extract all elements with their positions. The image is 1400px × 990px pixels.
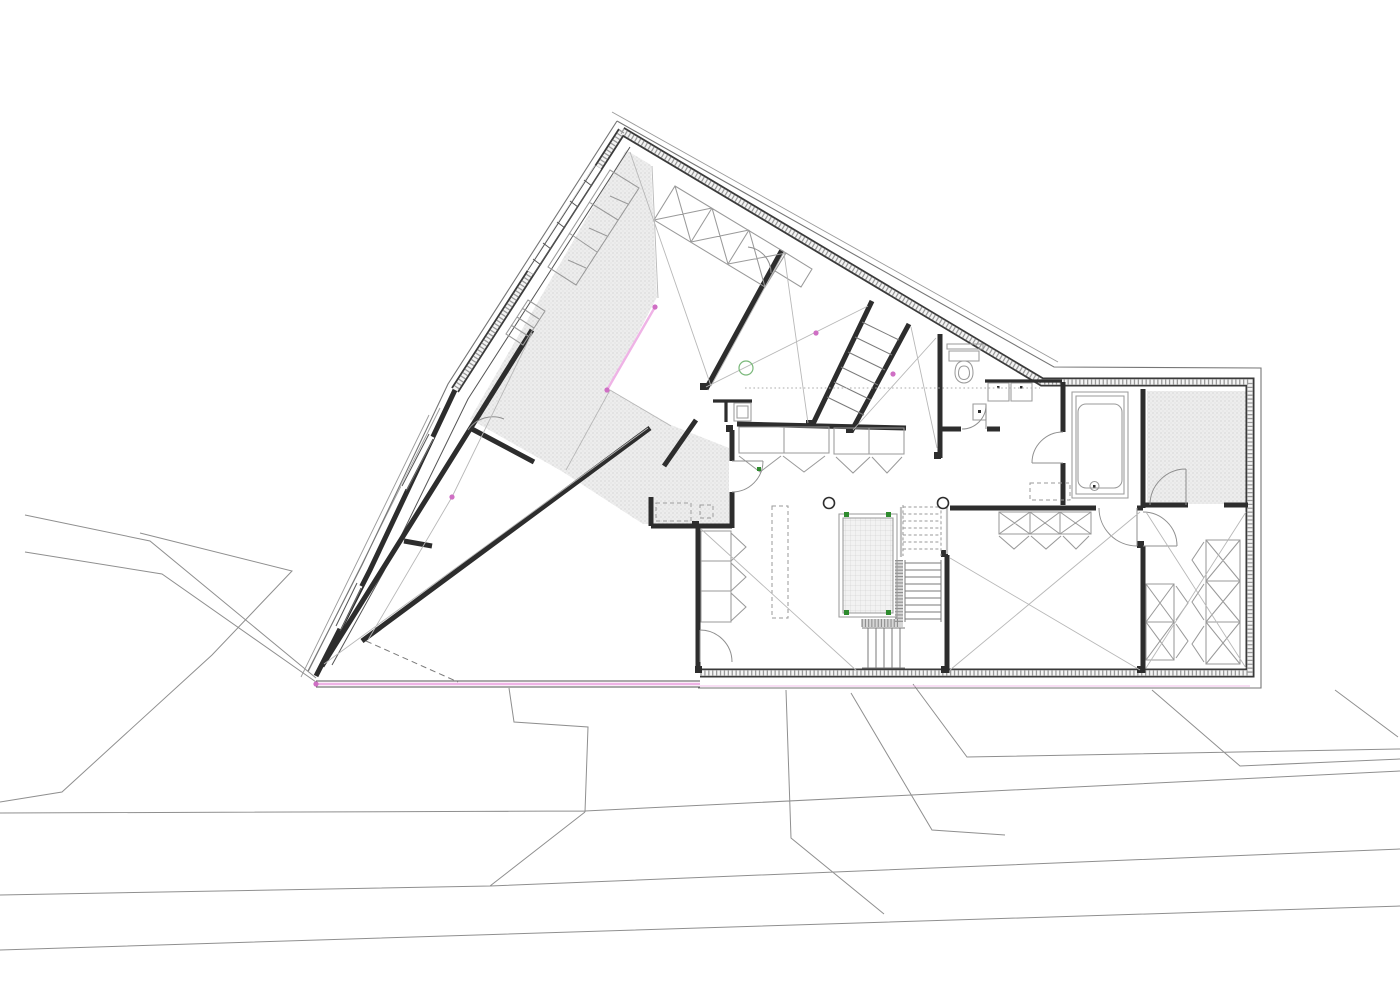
floor-plan-page [0, 0, 1400, 990]
stairs [827, 322, 947, 668]
floor-plan-canvas [0, 0, 1400, 990]
survey-lines [313, 304, 1250, 686]
interior-light-walls [713, 381, 1062, 422]
green-circle-fixture [739, 361, 753, 375]
dashed-tip-line [366, 641, 458, 682]
round-columns [824, 498, 949, 509]
stair-treads-dashed-above-cut [903, 505, 941, 556]
left-lower-wall [316, 390, 455, 676]
pool-grid-floor [843, 518, 893, 613]
terrace-edge-lines [301, 112, 1058, 677]
interior-walls [322, 250, 1248, 673]
interior-partition-walls [322, 250, 1248, 673]
stair-balustrade [901, 505, 947, 557]
sauna-stipple-floor [1147, 391, 1247, 504]
